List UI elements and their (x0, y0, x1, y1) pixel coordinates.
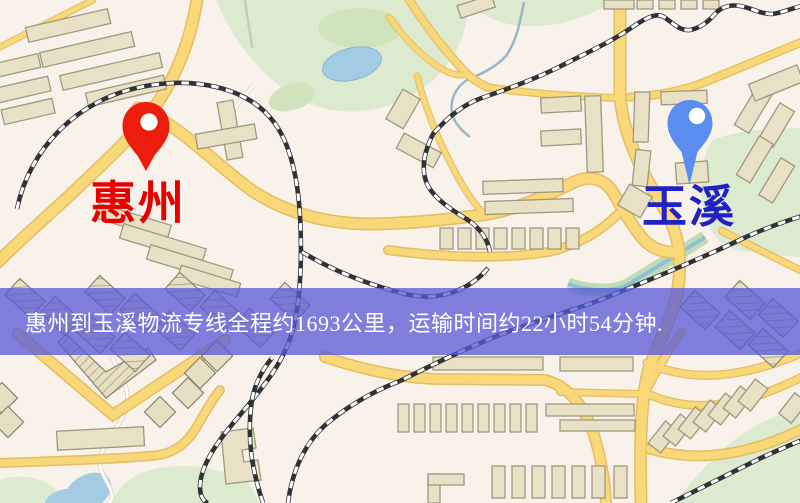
origin-label: 惠州 (90, 178, 186, 229)
map-layers: 玉溪 惠州 (0, 0, 800, 503)
pin-hole (689, 108, 705, 124)
destination-label: 玉溪 (642, 182, 736, 232)
pin-hole (140, 113, 157, 130)
route-info-banner: 惠州到玉溪物流专线全程约1693公里，运输时间约22小时54分钟. (0, 288, 800, 355)
route-info-text: 惠州到玉溪物流专线全程约1693公里，运输时间约22小时54分钟. (25, 306, 663, 338)
map-canvas: 玉溪 惠州 惠州到玉溪物流专线全程约1693公里，运输时间约22小时54分钟. (0, 0, 800, 503)
